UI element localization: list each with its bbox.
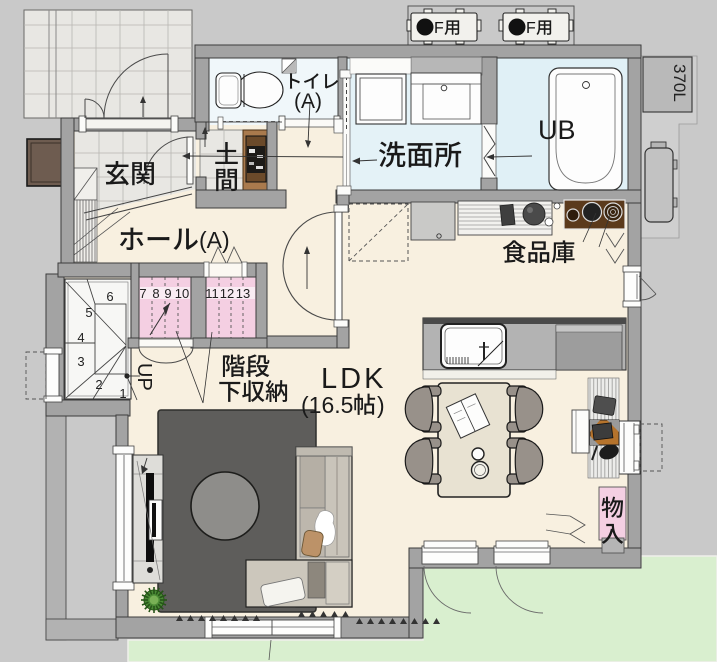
svg-text:(16.5: (16.5 <box>301 392 353 418</box>
svg-text:370L: 370L <box>670 64 689 102</box>
svg-text:9: 9 <box>164 286 171 301</box>
svg-text:4: 4 <box>77 330 84 345</box>
svg-text:12: 12 <box>220 286 234 301</box>
svg-text:(A): (A) <box>294 90 322 113</box>
svg-text:3: 3 <box>77 354 84 369</box>
svg-text:UB: UB <box>538 115 576 145</box>
svg-text:11: 11 <box>205 286 219 301</box>
svg-text:): ) <box>377 392 385 418</box>
svg-text:6: 6 <box>106 289 113 304</box>
svg-text:(A): (A) <box>199 227 230 253</box>
svg-text:13: 13 <box>236 286 250 301</box>
svg-text:1: 1 <box>119 386 126 401</box>
svg-text:UP: UP <box>133 363 155 391</box>
svg-text:5: 5 <box>85 305 92 320</box>
svg-text:LDK: LDK <box>321 363 386 395</box>
svg-text:F: F <box>434 20 444 37</box>
svg-text:F: F <box>526 20 536 37</box>
svg-text:2: 2 <box>95 377 102 392</box>
svg-text:8: 8 <box>152 286 159 301</box>
svg-text:7: 7 <box>139 286 146 301</box>
svg-text:10: 10 <box>175 286 189 301</box>
